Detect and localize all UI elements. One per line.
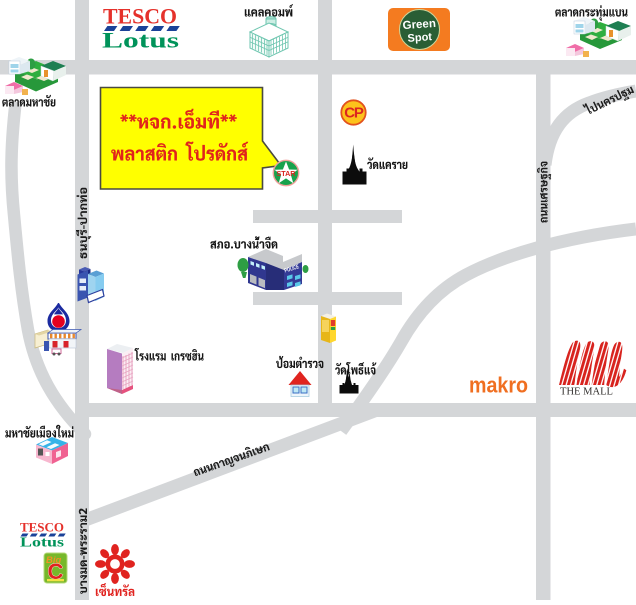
svg-text:Lotus: Lotus: [102, 28, 180, 53]
svg-text:Green: Green: [402, 18, 436, 32]
svg-text:makro: makro: [469, 373, 528, 398]
svg-text:TESCO: TESCO: [103, 4, 177, 29]
svg-text:STAR: STAR: [277, 171, 296, 178]
svg-text:TESCO: TESCO: [20, 520, 64, 535]
svg-text:CP: CP: [344, 105, 364, 122]
svg-text:THE MALL: THE MALL: [560, 387, 613, 398]
svg-text:Spot: Spot: [407, 31, 433, 45]
svg-text:Lotus: Lotus: [20, 535, 64, 550]
